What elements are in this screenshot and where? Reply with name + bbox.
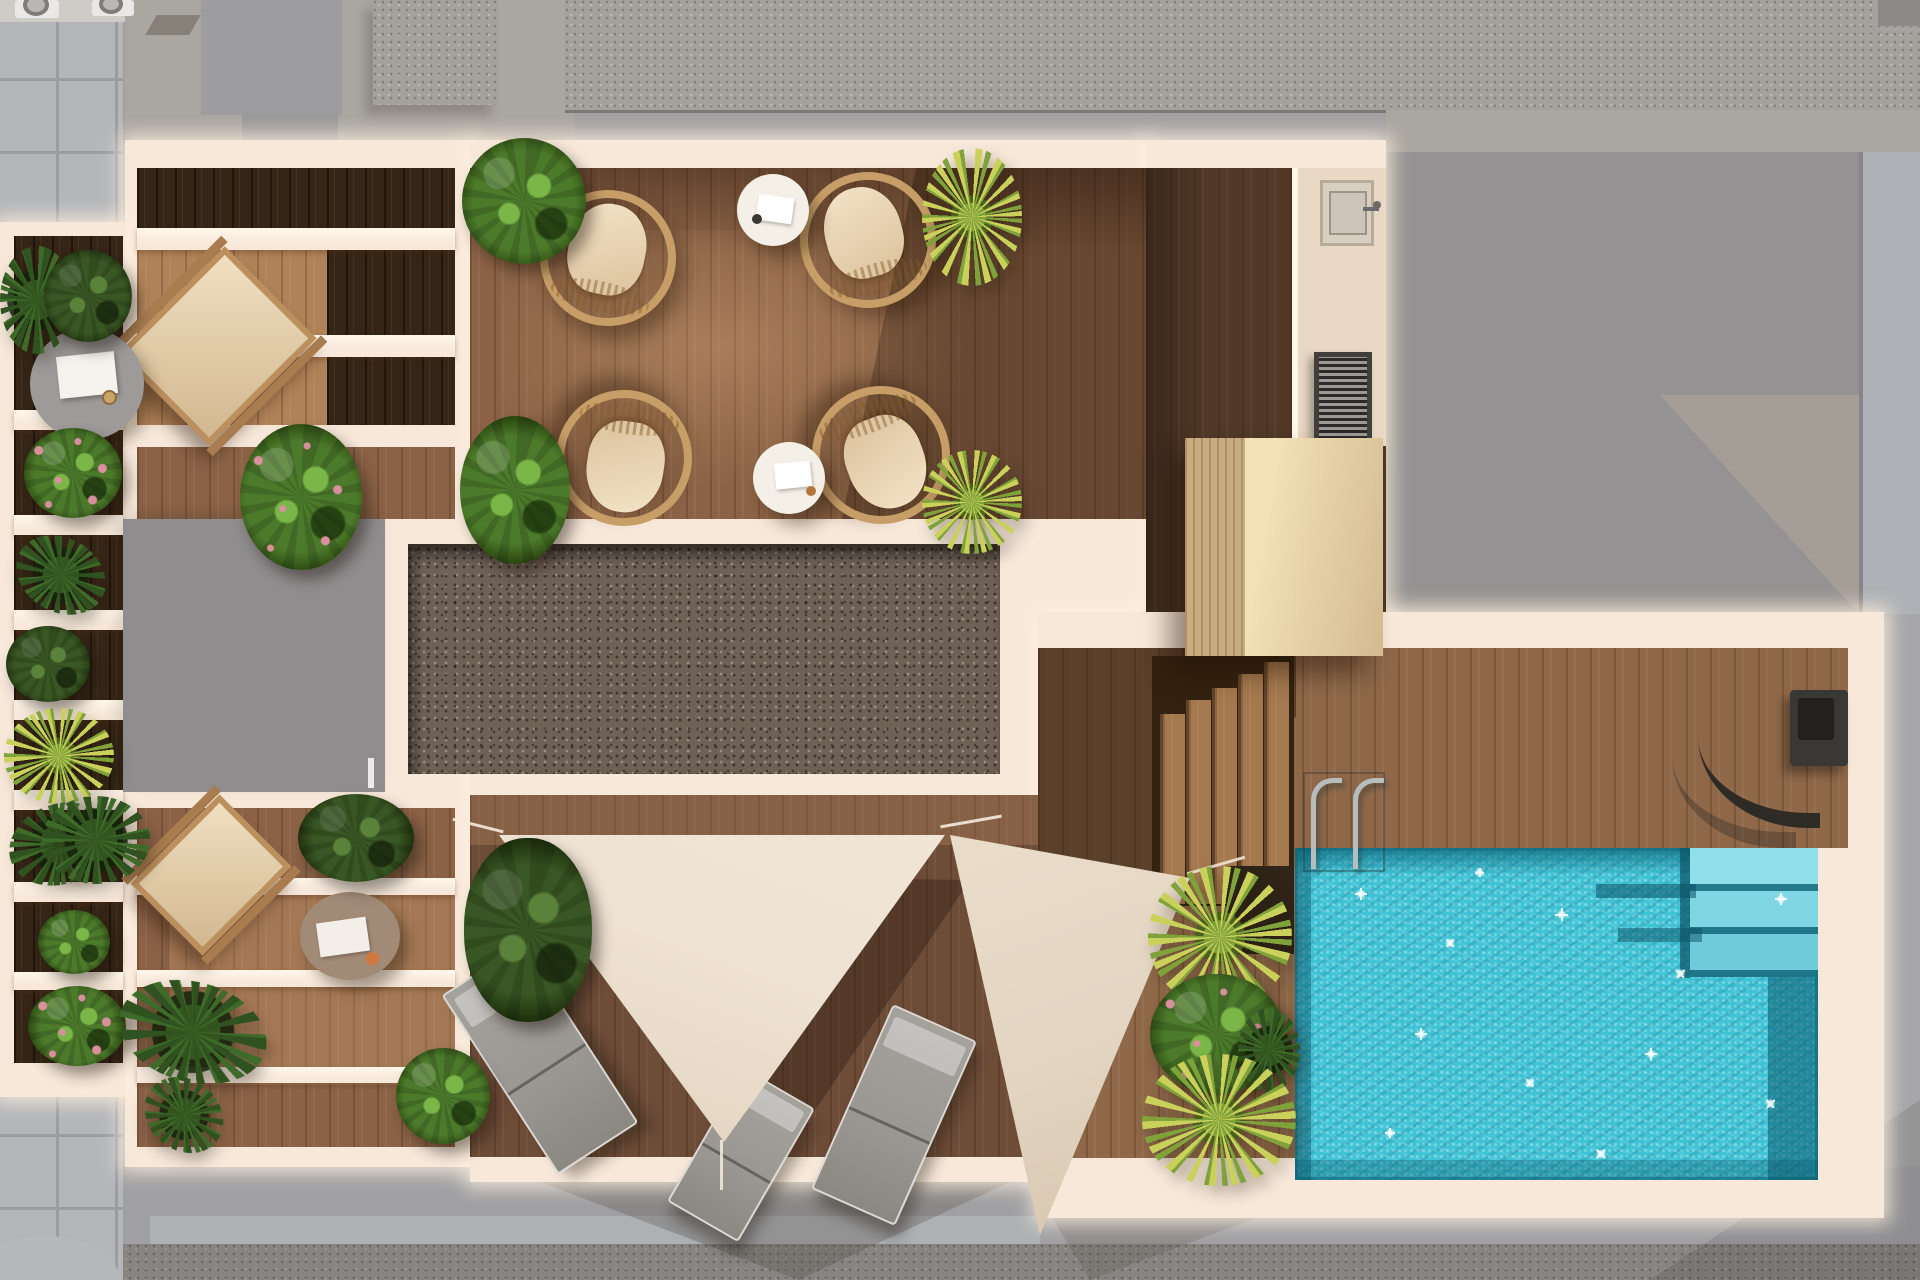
faucet-icon — [1373, 201, 1381, 209]
palm-plant — [4, 708, 114, 804]
right-roof-sun-triangle — [1386, 152, 1859, 614]
plant-flowers — [240, 424, 362, 570]
sparkle-icon — [1555, 908, 1568, 921]
pool-step — [1690, 891, 1818, 934]
pavement-top-left — [0, 20, 123, 224]
ac-fan-icon — [99, 0, 123, 14]
plant — [460, 416, 570, 564]
grill-vent — [1314, 352, 1372, 444]
plant-flowers — [24, 428, 122, 518]
pool-step — [1690, 934, 1818, 977]
pool-step-side-shadow — [1680, 848, 1690, 978]
pool-step — [1690, 848, 1818, 891]
palm-plant — [1142, 1054, 1296, 1186]
pergola-beam — [137, 228, 455, 250]
table-cup — [102, 390, 117, 405]
plant — [464, 838, 592, 1022]
gravel-roof-field — [408, 544, 1000, 774]
sparkle-icon — [1775, 893, 1787, 905]
plant-flowers — [28, 986, 126, 1066]
sparkle-icon — [1645, 1048, 1657, 1060]
pool-corner-steps — [1690, 848, 1818, 978]
sparkle-icon — [1475, 868, 1484, 877]
plant — [38, 910, 110, 974]
stair-core-handle — [368, 758, 374, 788]
timber-platform-shade — [1185, 438, 1245, 656]
timber-platform — [1185, 438, 1383, 656]
plant — [42, 796, 150, 884]
right-roof-warm-band — [1386, 110, 1920, 152]
pool-ladder-rail — [1353, 778, 1384, 869]
table-cup — [806, 486, 816, 496]
sink-basin — [1329, 191, 1367, 235]
ac-unit — [15, 0, 59, 18]
pool-ladder-rail — [1311, 778, 1342, 869]
pool-edge-shadow-bottom — [1295, 1160, 1818, 1180]
right-roof-band-light — [1859, 152, 1920, 614]
table-plate — [366, 952, 379, 965]
table-tray — [774, 460, 813, 490]
shower-head-icon — [1798, 698, 1834, 740]
sink-unit — [1320, 180, 1374, 246]
table-cup — [752, 214, 762, 224]
plant — [462, 138, 586, 264]
sparkle-icon — [1415, 1028, 1427, 1040]
sparkle-icon — [1385, 1128, 1395, 1138]
pool-step-shadow-bar — [1596, 884, 1696, 898]
kitchen-divider — [1292, 168, 1298, 446]
plant — [396, 1048, 490, 1144]
pool-edge-shadow-left — [1295, 848, 1311, 1180]
pergola-beam — [14, 882, 123, 902]
speckled-roof-corner — [1878, 0, 1920, 26]
ac-unit — [92, 0, 134, 16]
sparkle-icon — [1355, 888, 1367, 900]
roof-box-speckled — [373, 0, 498, 105]
right-roof-field — [1386, 152, 1859, 614]
pergola-beam — [14, 515, 123, 535]
pool-step-shadow-bar — [1618, 928, 1702, 942]
sail-rope — [720, 1140, 723, 1190]
plant — [6, 626, 90, 702]
pool-ladder — [1303, 772, 1385, 872]
plant — [298, 794, 414, 882]
bottom-roof-dark-strip — [0, 1244, 1920, 1280]
roof-block-grey — [201, 0, 342, 115]
ac-fan-icon — [23, 0, 49, 16]
plant — [44, 250, 132, 342]
table-card — [316, 917, 370, 958]
rooftop-plan-render — [0, 0, 1920, 1280]
palm-plant — [922, 148, 1022, 286]
palm-plant — [922, 450, 1022, 554]
speckled-roof-strip — [565, 0, 1920, 113]
